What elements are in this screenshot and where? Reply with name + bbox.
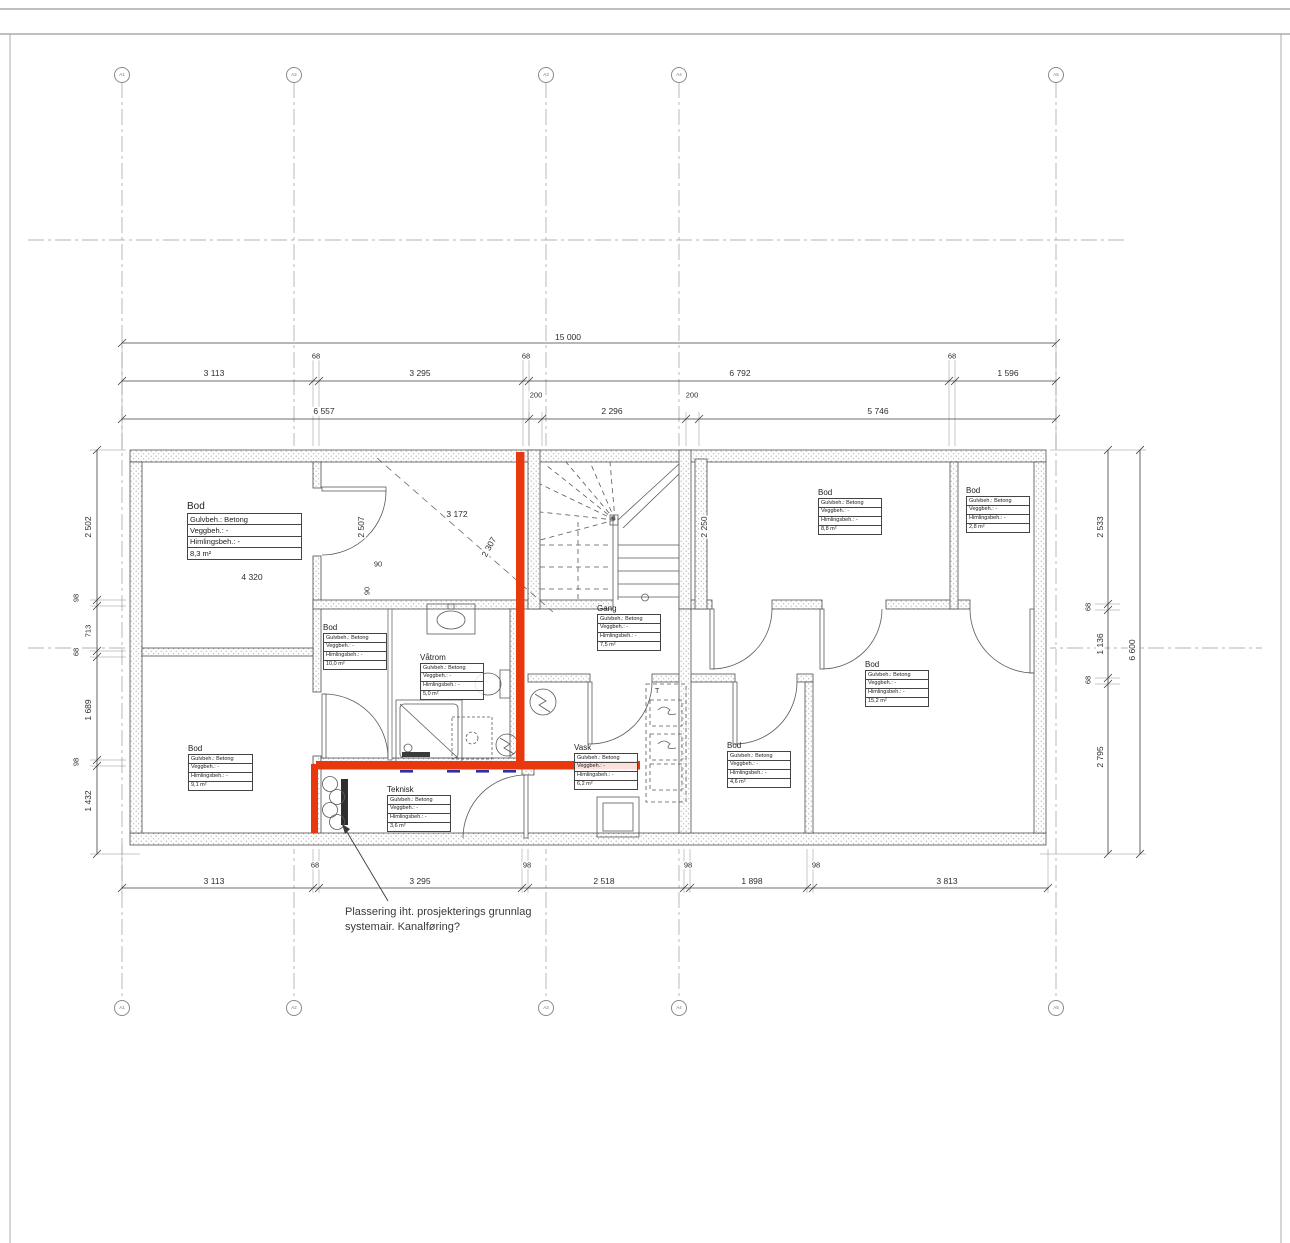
room-finish-row: Himlingsbeh.: -	[388, 814, 450, 823]
room-name: Bod	[187, 502, 205, 512]
room-finish-row: 5,0 m²	[421, 691, 483, 699]
room-finish-row: Veggbeh.: -	[728, 761, 790, 770]
room-finish-row: Veggbeh.: -	[388, 805, 450, 814]
room-finish-row: Gulvbeh.: Betong	[967, 497, 1029, 506]
dim-label: 4 320	[240, 573, 263, 582]
room-finish-row: Gulvbeh.: Betong	[388, 796, 450, 805]
room-finish-row: 8,8 m²	[819, 526, 881, 534]
grid-bubble: A1	[114, 1000, 130, 1016]
dim-label: 6 557	[312, 407, 335, 416]
dim-label: 90	[363, 586, 371, 596]
room-finish-row: Himlingsbeh.: -	[728, 770, 790, 779]
room-finish-row: Gulvbeh.: Betong	[421, 664, 483, 673]
room-finish-row: Gulvbeh.: Betong	[188, 514, 301, 525]
room-label: BodGulvbeh.: BetongVeggbeh.: -Himlingsbe…	[187, 513, 302, 560]
grid-bubble: A5	[1048, 67, 1064, 83]
dim-label: 98	[811, 861, 821, 869]
room-finish-table: Gulvbeh.: BetongVeggbeh.: -Himlingsbeh.:…	[323, 633, 387, 670]
room-finish-row: 2,8 m²	[967, 524, 1029, 532]
room-finish-table: Gulvbeh.: BetongVeggbeh.: -Himlingsbeh.:…	[387, 795, 451, 832]
grid-bubble: A4	[671, 1000, 687, 1016]
room-name: Gang	[597, 605, 617, 613]
room-name: Våtrom	[420, 654, 446, 662]
room-name: Teknisk	[387, 786, 414, 794]
dim-label: 1 432	[84, 789, 93, 812]
room-finish-row: 9,1 m²	[189, 782, 252, 790]
room-finish-row: Veggbeh.: -	[188, 525, 301, 536]
room-finish-row: 6,2 m²	[575, 781, 637, 789]
room-finish-row: Gulvbeh.: Betong	[866, 671, 928, 680]
room-finish-row: Himlingsbeh.: -	[575, 772, 637, 781]
dim-label: 98	[683, 861, 693, 869]
grid-bubble: A5	[1048, 1000, 1064, 1016]
blueprint-canvas: A1A2A3A4A5A1A2A3A4A5 15 0003 113683 2956…	[0, 0, 1290, 1243]
annotation-line-1: Plassering iht. prosjekterings grunnlag	[345, 905, 532, 920]
dim-label: 6 792	[728, 369, 751, 378]
room-finish-row: Veggbeh.: -	[575, 763, 637, 772]
dim-label: 1 596	[996, 369, 1019, 378]
room-label: VaskGulvbeh.: BetongVeggbeh.: -Himlingsb…	[574, 753, 638, 790]
dim-label: 5 746	[866, 407, 889, 416]
dim-label: 1 136	[1096, 632, 1105, 655]
dim-label: 68	[1084, 675, 1092, 685]
room-finish-row: Veggbeh.: -	[598, 624, 660, 633]
dim-label: 713	[84, 624, 92, 639]
room-finish-row: Himlingsbeh.: -	[189, 773, 252, 782]
room-name: Bod	[727, 742, 741, 750]
dim-label: 1 689	[84, 698, 93, 721]
room-finish-table: Gulvbeh.: BetongVeggbeh.: -Himlingsbeh.:…	[187, 513, 302, 560]
room-name: Bod	[966, 487, 980, 495]
room-label: BodGulvbeh.: BetongVeggbeh.: -Himlingsbe…	[323, 633, 387, 670]
room-label: TekniskGulvbeh.: BetongVeggbeh.: -Himlin…	[387, 795, 451, 832]
dim-label: 2 795	[1096, 745, 1105, 768]
dim-label: 3 813	[935, 877, 958, 886]
grid-bubble: A2	[286, 1000, 302, 1016]
grid-bubble: A3	[538, 67, 554, 83]
room-finish-row: Gulvbeh.: Betong	[598, 615, 660, 624]
room-finish-row: 15,2 m²	[866, 698, 928, 706]
room-finish-table: Gulvbeh.: BetongVeggbeh.: -Himlingsbeh.:…	[727, 751, 791, 788]
dim-label: 2 250	[700, 515, 709, 538]
room-label: BodGulvbeh.: BetongVeggbeh.: -Himlingsbe…	[966, 496, 1030, 533]
dim-label: 6 600	[1128, 638, 1137, 661]
annotation-line-2: systemair. Kanalføring?	[345, 920, 532, 935]
room-finish-row: Veggbeh.: -	[819, 508, 881, 517]
room-finish-table: Gulvbeh.: BetongVeggbeh.: -Himlingsbeh.:…	[574, 753, 638, 790]
room-finish-row: Gulvbeh.: Betong	[324, 634, 386, 643]
grid-bubble: A1	[114, 67, 130, 83]
dim-label: 98	[522, 861, 532, 869]
room-finish-row: Himlingsbeh.: -	[598, 633, 660, 642]
room-name: Bod	[188, 745, 202, 753]
dim-label: 3 113	[203, 369, 226, 378]
dim-label: 68	[521, 352, 531, 360]
room-finish-row: Veggbeh.: -	[189, 764, 252, 773]
fixture-letter: T	[655, 688, 659, 695]
room-finish-row: 3,6 m²	[388, 823, 450, 831]
room-name: Bod	[323, 624, 337, 632]
dim-label: 2 518	[592, 877, 615, 886]
room-finish-row: Himlingsbeh.: -	[324, 652, 386, 661]
room-finish-row: 10,0 m²	[324, 661, 386, 669]
dim-label: 98	[72, 593, 80, 603]
dim-label: 2 502	[84, 515, 93, 538]
room-finish-row: Himlingsbeh.: -	[866, 689, 928, 698]
dim-label: 3 295	[408, 877, 431, 886]
room-finish-row: Veggbeh.: -	[866, 680, 928, 689]
dim-label: 2 296	[600, 407, 623, 416]
markup-annotation: Plassering iht. prosjekterings grunnlag …	[345, 905, 532, 935]
dim-label: 2 507	[357, 515, 366, 538]
room-finish-row: 4,6 m²	[728, 779, 790, 787]
room-label: GangGulvbeh.: BetongVeggbeh.: -Himlingsb…	[597, 614, 661, 651]
grid-bubble: A3	[538, 1000, 554, 1016]
room-finish-table: Gulvbeh.: BetongVeggbeh.: -Himlingsbeh.:…	[865, 670, 929, 707]
dim-label: 68	[310, 861, 320, 869]
room-finish-row: Gulvbeh.: Betong	[819, 499, 881, 508]
room-finish-row: Veggbeh.: -	[967, 506, 1029, 515]
room-finish-row: Gulvbeh.: Betong	[728, 752, 790, 761]
room-finish-row: Gulvbeh.: Betong	[575, 754, 637, 763]
room-label: VåtromGulvbeh.: BetongVeggbeh.: -Himling…	[420, 663, 484, 700]
room-name: Bod	[865, 661, 879, 669]
room-name: Vask	[574, 744, 591, 752]
room-finish-row: Himlingsbeh.: -	[188, 537, 301, 548]
grid-bubble: A2	[286, 67, 302, 83]
room-label: BodGulvbeh.: BetongVeggbeh.: -Himlingsbe…	[727, 751, 791, 788]
room-finish-table: Gulvbeh.: BetongVeggbeh.: -Himlingsbeh.:…	[188, 754, 253, 791]
dim-label: 1 898	[740, 877, 763, 886]
room-label: BodGulvbeh.: BetongVeggbeh.: -Himlingsbe…	[865, 670, 929, 707]
grid-bubble: A4	[671, 67, 687, 83]
room-finish-row: Veggbeh.: -	[324, 643, 386, 652]
room-finish-row: Himlingsbeh.: -	[421, 682, 483, 691]
dim-label: 3 113	[203, 877, 226, 886]
dim-label: 98	[72, 757, 80, 767]
dim-label: 200	[685, 391, 700, 399]
dim-label: 90	[373, 560, 383, 568]
dim-label: 68	[947, 352, 957, 360]
room-finish-row: Gulvbeh.: Betong	[189, 755, 252, 764]
room-finish-table: Gulvbeh.: BetongVeggbeh.: -Himlingsbeh.:…	[966, 496, 1030, 533]
room-label: BodGulvbeh.: BetongVeggbeh.: -Himlingsbe…	[818, 498, 882, 535]
dim-label: 3 172	[445, 510, 468, 519]
partition-wall	[388, 609, 392, 760]
dim-label: 68	[1084, 602, 1092, 612]
dim-label: 200	[529, 391, 544, 399]
room-finish-row: 7,5 m²	[598, 642, 660, 650]
room-label: BodGulvbeh.: BetongVeggbeh.: -Himlingsbe…	[188, 754, 253, 791]
room-finish-row: Himlingsbeh.: -	[819, 517, 881, 526]
room-finish-table: Gulvbeh.: BetongVeggbeh.: -Himlingsbeh.:…	[818, 498, 882, 535]
dim-label: 3 295	[408, 369, 431, 378]
dim-label: 68	[72, 647, 80, 657]
room-name: Bod	[818, 489, 832, 497]
room-finish-table: Gulvbeh.: BetongVeggbeh.: -Himlingsbeh.:…	[597, 614, 661, 651]
dim-label: 68	[311, 352, 321, 360]
room-finish-row: Himlingsbeh.: -	[967, 515, 1029, 524]
room-finish-row: Veggbeh.: -	[421, 673, 483, 682]
dim-label: 2 533	[1096, 515, 1105, 538]
room-finish-table: Gulvbeh.: BetongVeggbeh.: -Himlingsbeh.:…	[420, 663, 484, 700]
room-finish-row: 8,3 m²	[188, 548, 301, 558]
dim-label: 15 000	[554, 333, 582, 342]
